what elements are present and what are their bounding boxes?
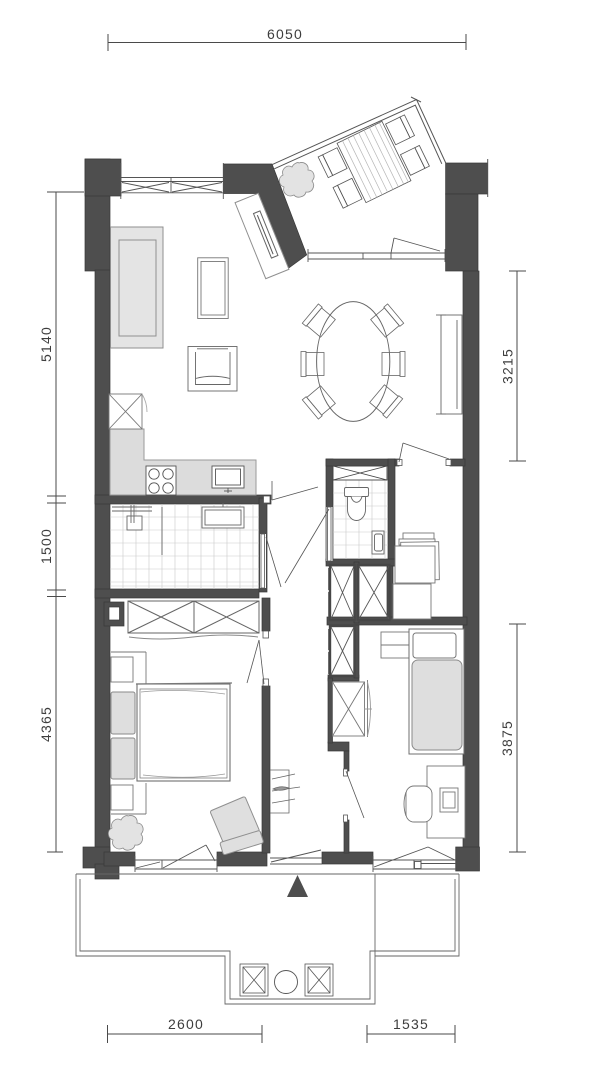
svg-text:5140: 5140 [38,326,54,362]
svg-text:6050: 6050 [267,26,303,42]
svg-text:3875: 3875 [499,720,515,756]
svg-text:1500: 1500 [38,528,54,564]
svg-text:4365: 4365 [38,706,54,742]
svg-text:2600: 2600 [168,1016,204,1032]
svg-text:1535: 1535 [393,1016,429,1032]
svg-text:3215: 3215 [500,348,516,384]
